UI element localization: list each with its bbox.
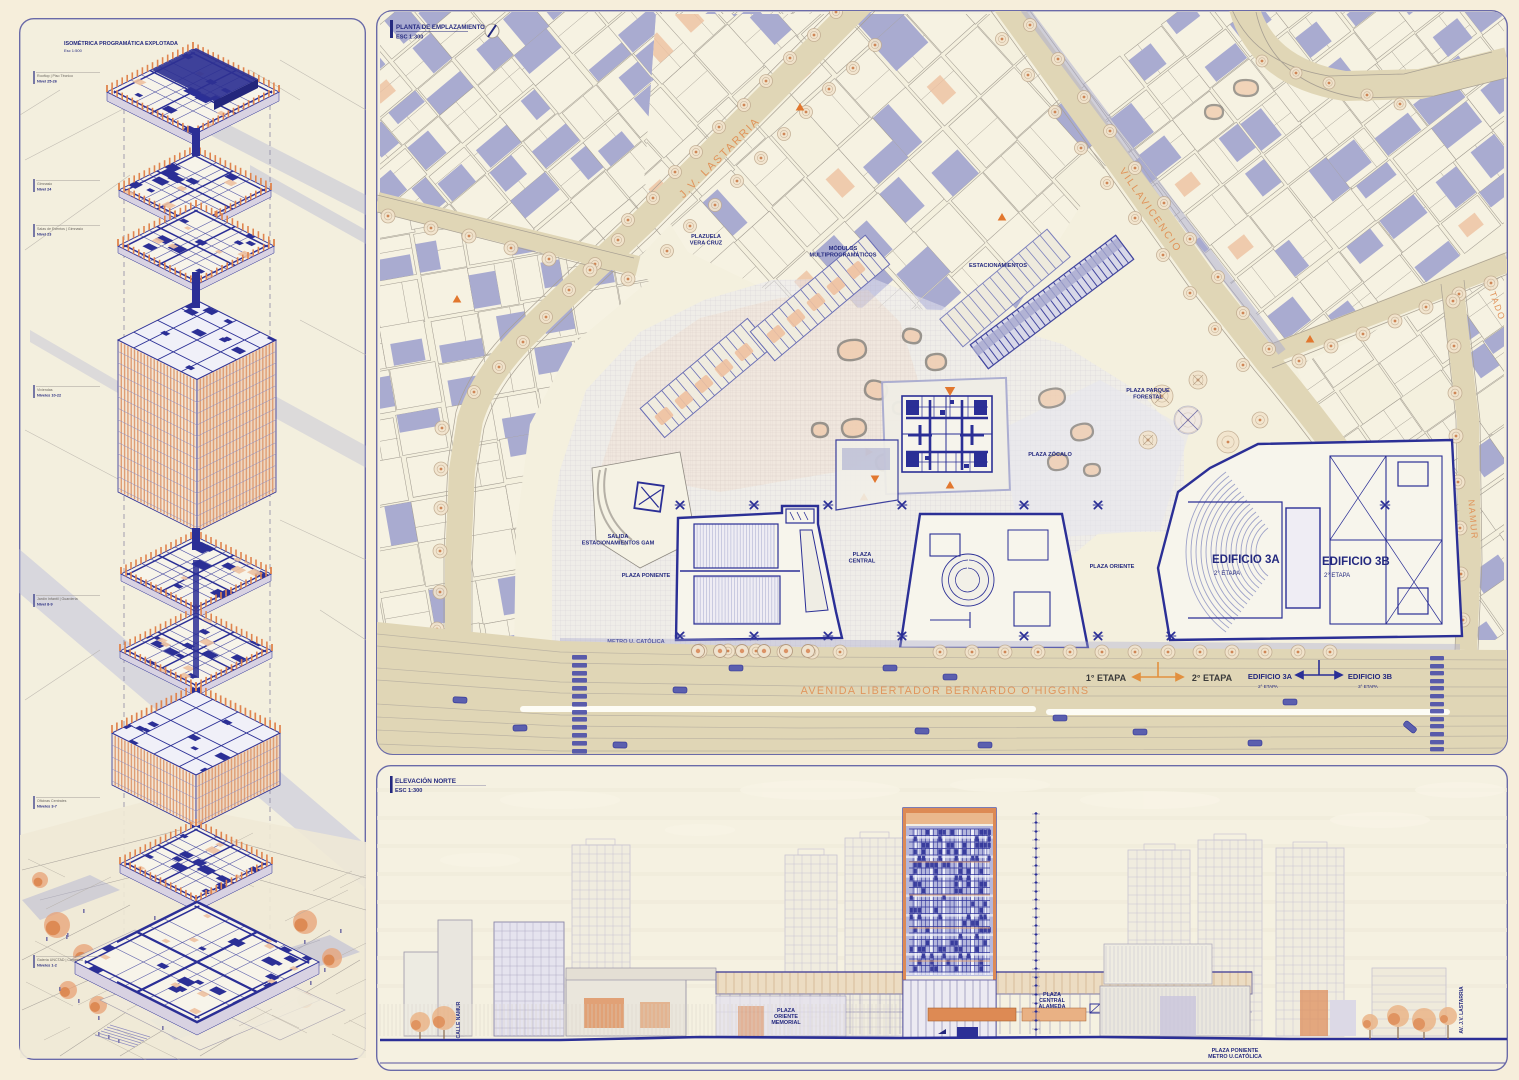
- svg-text:Nivel 8-9: Nivel 8-9: [37, 603, 53, 607]
- svg-text:ESC 1:300: ESC 1:300: [396, 35, 423, 41]
- svg-text:Viviendas: Viviendas: [37, 388, 53, 392]
- svg-text:ISOMÉTRICA PROGRAMÁTICA EXPLOT: ISOMÉTRICA PROGRAMÁTICA EXPLOTADA: [64, 39, 178, 47]
- svg-text:Nivel 24: Nivel 24: [37, 188, 52, 192]
- svg-text:METRO U.CATÓLICA: METRO U.CATÓLICA: [1208, 1052, 1262, 1060]
- svg-text:Niveles 1-2: Niveles 1-2: [37, 964, 57, 968]
- svg-text:PLAZA ZÓCALO: PLAZA ZÓCALO: [1028, 450, 1072, 458]
- svg-text:Salas de Eventos | Gimnasio: Salas de Eventos | Gimnasio: [37, 227, 83, 231]
- svg-text:MEMORIAL: MEMORIAL: [771, 1020, 801, 1026]
- svg-text:EDIFICIO 3A: EDIFICIO 3A: [1212, 554, 1280, 566]
- svg-text:EDIFICIO 3A: EDIFICIO 3A: [1248, 672, 1293, 681]
- svg-text:ESTACIONAMIENTOS GAM: ESTACIONAMIENTOS GAM: [582, 541, 655, 547]
- svg-text:SALIDA: SALIDA: [608, 534, 629, 540]
- svg-text:CENTRAL: CENTRAL: [849, 559, 876, 565]
- svg-text:MÓDULOS: MÓDULOS: [829, 244, 858, 252]
- svg-text:PLAZA PARQUE: PLAZA PARQUE: [1126, 388, 1170, 394]
- svg-text:CALLE NAMUR: CALLE NAMUR: [456, 1001, 462, 1038]
- svg-text:FORESTAL: FORESTAL: [1133, 395, 1163, 401]
- svg-text:PLAZA: PLAZA: [853, 552, 872, 558]
- svg-text:EDIFICIO 3B: EDIFICIO 3B: [1322, 556, 1390, 568]
- svg-text:PLAZA PONIENTE: PLAZA PONIENTE: [622, 573, 671, 579]
- svg-text:Esc 1:500: Esc 1:500: [64, 48, 83, 53]
- svg-text:Nivel 23: Nivel 23: [37, 233, 51, 237]
- svg-text:AV. J.V. LASTARRIA: AV. J.V. LASTARRIA: [1459, 986, 1465, 1034]
- svg-text:Galería UNCTAD | Comercio: Galería UNCTAD | Comercio: [37, 958, 83, 962]
- svg-text:MULTIPROGRAMÁTICOS: MULTIPROGRAMÁTICOS: [809, 252, 876, 259]
- svg-text:ELEVACIÓN NORTE: ELEVACIÓN NORTE: [395, 776, 457, 785]
- svg-text:2° ETAPA: 2° ETAPA: [1258, 684, 1278, 689]
- svg-text:Oficinas Centrales: Oficinas Centrales: [37, 799, 67, 803]
- svg-text:Rooftop | Piso Técnico: Rooftop | Piso Técnico: [37, 74, 73, 78]
- svg-text:Niveles 3-7: Niveles 3-7: [37, 805, 57, 809]
- svg-text:Niveles 10-22: Niveles 10-22: [37, 394, 61, 398]
- svg-text:1° ETAPA: 1° ETAPA: [1086, 673, 1127, 683]
- svg-text:2° ETAPA: 2° ETAPA: [1214, 571, 1240, 577]
- svg-text:PLAZUELA: PLAZUELA: [691, 234, 721, 240]
- svg-text:ALAMEDA: ALAMEDA: [1039, 1004, 1066, 1010]
- svg-text:ESTACIONAMIENTOS: ESTACIONAMIENTOS: [969, 263, 1027, 269]
- svg-text:PLAZA ORIENTE: PLAZA ORIENTE: [1090, 564, 1135, 570]
- svg-text:3° ETAPA: 3° ETAPA: [1358, 684, 1378, 689]
- svg-text:PLANTA DE EMPLAZAMIENTO: PLANTA DE EMPLAZAMIENTO: [396, 24, 485, 31]
- svg-text:2° ETAPA: 2° ETAPA: [1192, 673, 1233, 683]
- svg-text:VERA CRUZ: VERA CRUZ: [690, 241, 723, 247]
- svg-text:Gimnasio: Gimnasio: [37, 182, 52, 186]
- svg-text:ESC 1:300: ESC 1:300: [395, 788, 422, 794]
- svg-text:EDIFICIO 3B: EDIFICIO 3B: [1348, 672, 1393, 681]
- svg-text:Nivel 25-26: Nivel 25-26: [37, 80, 57, 84]
- svg-text:AVENIDA LIBERTADOR BERNARDO O’: AVENIDA LIBERTADOR BERNARDO O’HIGGINS: [801, 685, 1090, 697]
- svg-text:Jardín Infantil | Guardería: Jardín Infantil | Guardería: [37, 597, 78, 601]
- svg-text:2° ETAPA: 2° ETAPA: [1324, 573, 1350, 579]
